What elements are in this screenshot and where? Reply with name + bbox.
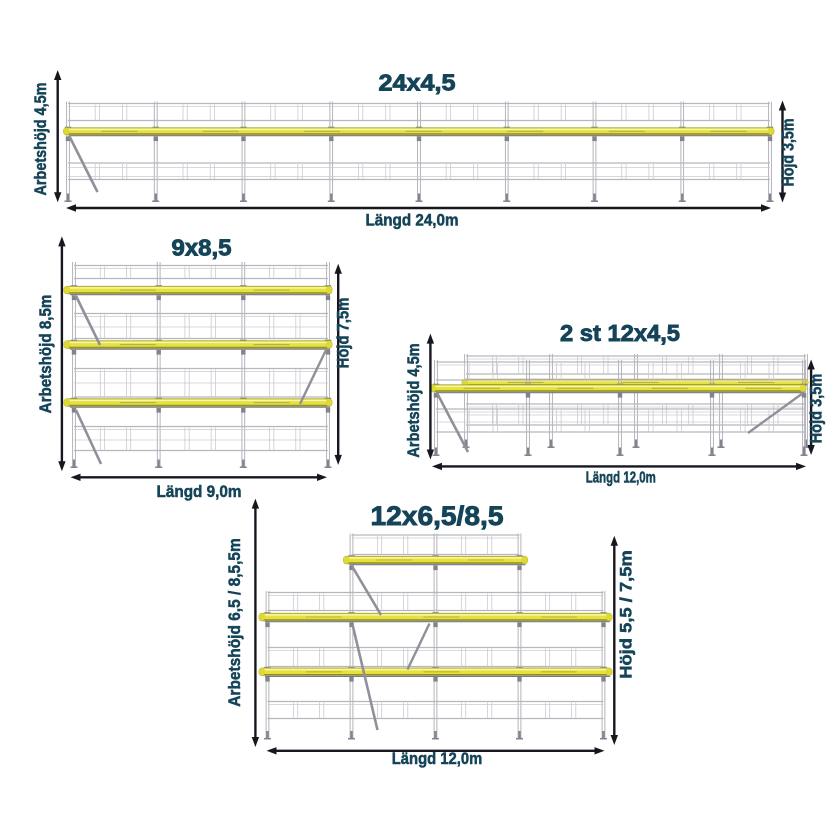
svg-text:Höjd 3,5m: Höjd 3,5m <box>780 119 798 187</box>
svg-text:Höjd 7,5m: Höjd 7,5m <box>335 298 353 369</box>
svg-text:Arbetshöjd 4,5m: Arbetshöjd 4,5m <box>405 343 423 457</box>
svg-text:Höjd 5,5 / 7,5m: Höjd 5,5 / 7,5m <box>618 550 636 679</box>
svg-text:Längd 12,0m: Längd 12,0m <box>586 470 656 487</box>
svg-text:24x4,5: 24x4,5 <box>379 70 456 96</box>
svg-text:Arbetshöjd 6,5 / 8,5,5m: Arbetshöjd 6,5 / 8,5,5m <box>226 538 244 707</box>
svg-text:Längd 24,0m: Längd 24,0m <box>366 212 459 230</box>
svg-text:12x6,5/8,5: 12x6,5/8,5 <box>371 501 504 531</box>
svg-text:Arbetshöjd 8,5m: Arbetshöjd 8,5m <box>37 295 55 414</box>
svg-text:Längd 12,0m: Längd 12,0m <box>392 750 483 768</box>
svg-text:9x8,5: 9x8,5 <box>172 235 232 261</box>
svg-text:2 st 12x4,5: 2 st 12x4,5 <box>560 320 680 346</box>
svg-text:Höjd 3,5m: Höjd 3,5m <box>808 374 826 444</box>
svg-text:Arbetshöjd 4,5m: Arbetshöjd 4,5m <box>32 83 50 196</box>
svg-text:Längd 9,0m: Längd 9,0m <box>157 483 242 501</box>
